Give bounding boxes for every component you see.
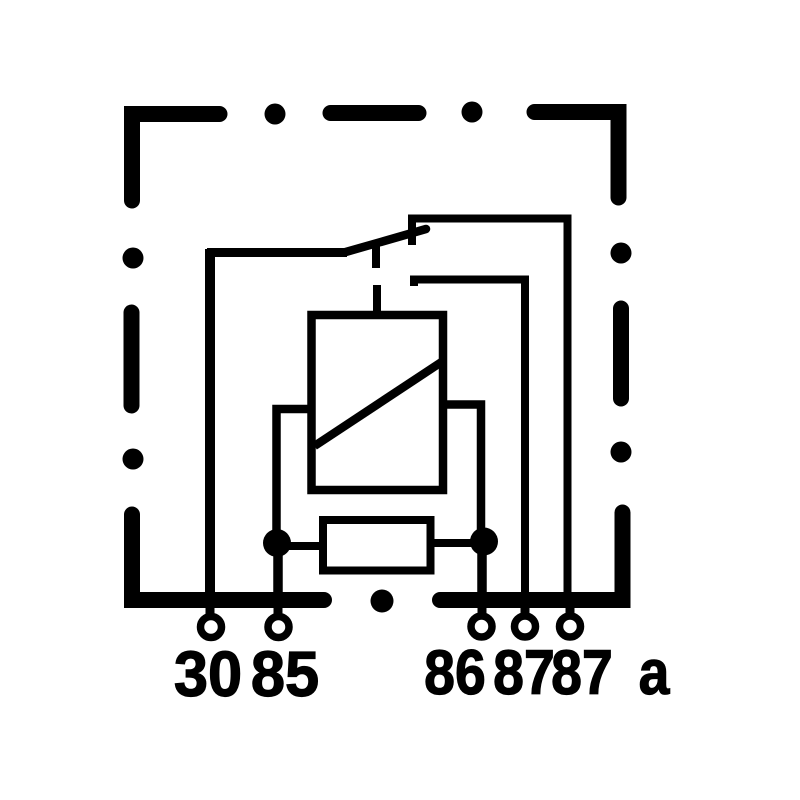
svg-text:86: 86: [424, 637, 486, 708]
svg-text:87: 87: [493, 637, 555, 708]
svg-text:30: 30: [174, 639, 242, 710]
svg-text:a: a: [639, 637, 671, 708]
svg-text:87: 87: [551, 637, 613, 708]
svg-text:85: 85: [251, 639, 319, 710]
